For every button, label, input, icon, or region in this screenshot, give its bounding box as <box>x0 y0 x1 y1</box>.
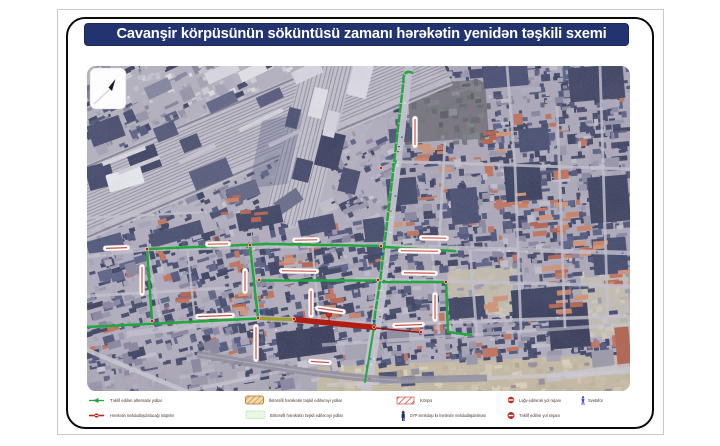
svg-text:Körpü: Körpü <box>420 398 432 404</box>
svg-text:DYP əməkdaşı ilə hərəkətin məh: DYP əməkdaşı ilə hərəkətin məhdudlaşdırı… <box>410 413 486 419</box>
svg-text:İkitərəfli hərəkətin təşkil ed: İkitərəfli hərəkətin təşkil ediləcəyi yo… <box>269 397 342 404</box>
svg-text:Ləğv ediləcək yol nişanı: Ləğv ediləcək yol nişanı <box>519 398 561 404</box>
svg-text:Hərəkətin məhdudlaşdırılacağı: Hərəkətin məhdudlaşdırılacağı nöqtələr <box>110 413 174 419</box>
svg-text:Svetofor: Svetofor <box>588 398 603 404</box>
svg-text:Təklif edilən alternativ yolla: Təklif edilən alternativ yollar <box>110 398 162 404</box>
svg-text:Təklif edilən yol nişanı: Təklif edilən yol nişanı <box>519 413 560 419</box>
svg-text:Birtərəfli hərəkətin təşkil ed: Birtərəfli hərəkətin təşkil ediləcəyi yo… <box>270 413 343 419</box>
